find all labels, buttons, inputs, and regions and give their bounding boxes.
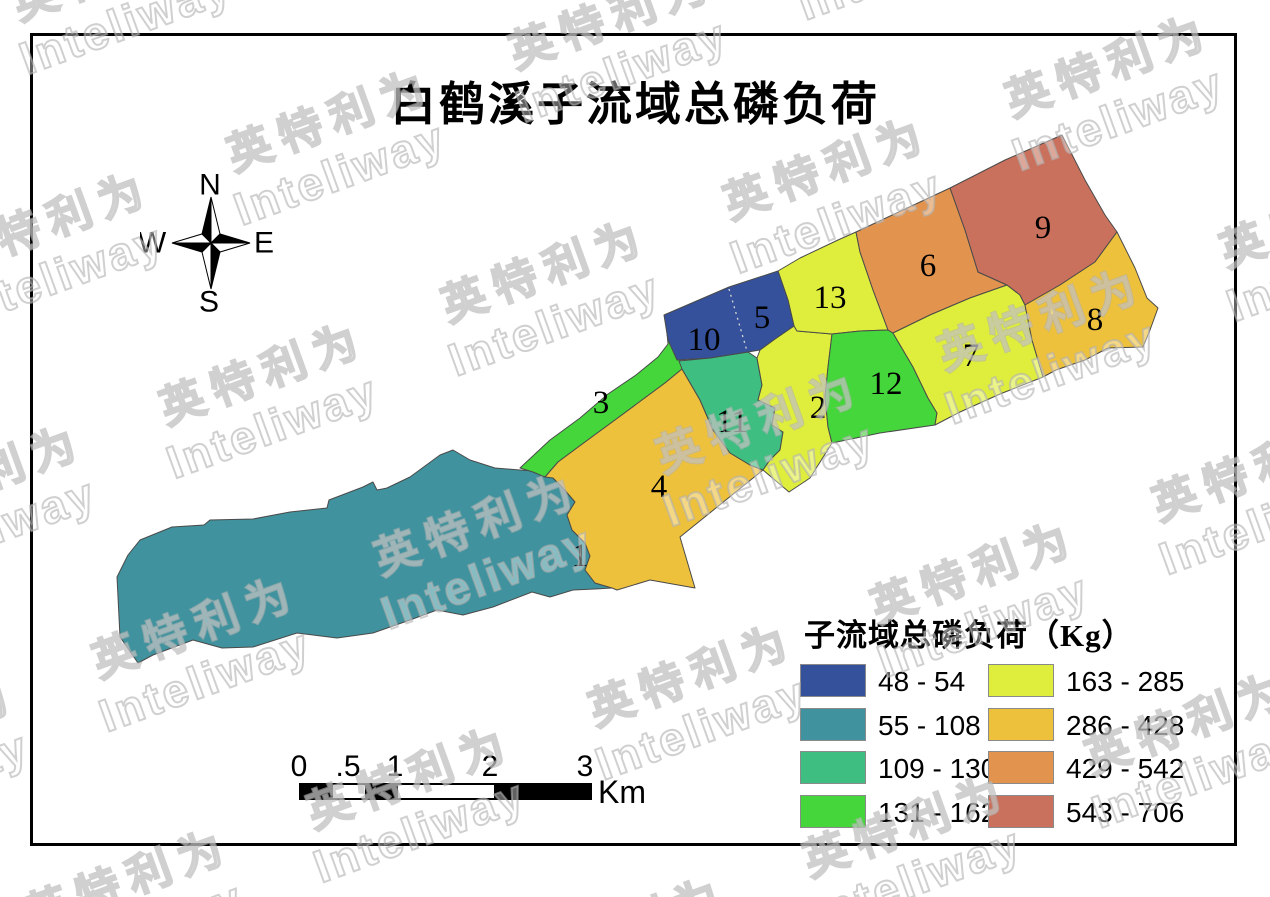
region-number-label-12: 12 <box>870 366 903 402</box>
compass-n-label: N <box>199 170 221 202</box>
map-title: 白鹤溪子流域总磷负荷 <box>0 68 1270 134</box>
legend-label: 286 - 428 <box>1066 710 1184 742</box>
region-number-label-8: 8 <box>1087 302 1104 338</box>
legend-swatch-163-285 <box>988 664 1054 697</box>
region-number-label-9: 9 <box>1035 210 1052 246</box>
compass-e-label: E <box>254 227 274 260</box>
legend-swatch-55-108 <box>800 708 866 741</box>
compass-w-label: W <box>140 227 167 260</box>
legend-label: 109 - 130 <box>878 753 996 785</box>
region-number-label-10: 10 <box>688 322 721 358</box>
legend-label: 429 - 542 <box>1066 753 1184 785</box>
legend-swatch-286-428 <box>988 708 1054 741</box>
legend-label: 48 - 54 <box>878 666 965 698</box>
scale-bar-segment <box>398 785 494 798</box>
region-number-label-2: 2 <box>810 390 827 426</box>
scale-bar-segment <box>365 785 398 798</box>
map-canvas: 白鹤溪子流域总磷负荷 13411213126798105 N E S W 子流域… <box>0 0 1270 897</box>
legend-label: 131 - 162 <box>878 797 996 829</box>
region-number-label-11: 11 <box>716 404 748 440</box>
scale-bar-tick-label: 2 <box>482 750 499 784</box>
scale-bar-tick-label: .5 <box>335 750 360 784</box>
region-number-label-3: 3 <box>593 385 610 421</box>
region-number-label-4: 4 <box>651 469 668 505</box>
region-number-label-1: 1 <box>572 538 589 574</box>
scale-bar-tick-label: 1 <box>387 750 404 784</box>
legend-label: 543 - 706 <box>1066 797 1184 829</box>
compass-star-icon <box>172 197 250 289</box>
legend-title: 子流域总磷负荷（Kg） <box>804 610 1134 655</box>
legend-label: 55 - 108 <box>878 710 981 742</box>
region-number-label-6: 6 <box>920 248 937 284</box>
scale-bar-segment <box>494 785 590 798</box>
subwatershed-region-1 <box>117 450 612 663</box>
compass-s-label: S <box>199 286 219 319</box>
region-number-label-13: 13 <box>814 280 847 316</box>
legend-swatch-543-706 <box>988 795 1054 828</box>
region-number-label-5: 5 <box>754 300 771 336</box>
scale-bar-tick-label: 0 <box>291 750 308 784</box>
legend-swatch-48-54 <box>800 664 866 697</box>
legend-swatch-429-542 <box>988 751 1054 784</box>
legend-label: 163 - 285 <box>1066 666 1184 698</box>
scale-bar <box>299 783 592 800</box>
scale-bar-segment <box>301 785 333 798</box>
scale-bar-segment <box>333 785 365 798</box>
scale-bar-unit: Km <box>598 774 646 811</box>
compass-rose: N E S W <box>140 170 285 320</box>
legend-swatch-131-162 <box>800 795 866 828</box>
region-number-label-7: 7 <box>963 338 980 374</box>
legend-swatch-109-130 <box>800 751 866 784</box>
scale-bar-tick-label: 3 <box>577 750 594 784</box>
